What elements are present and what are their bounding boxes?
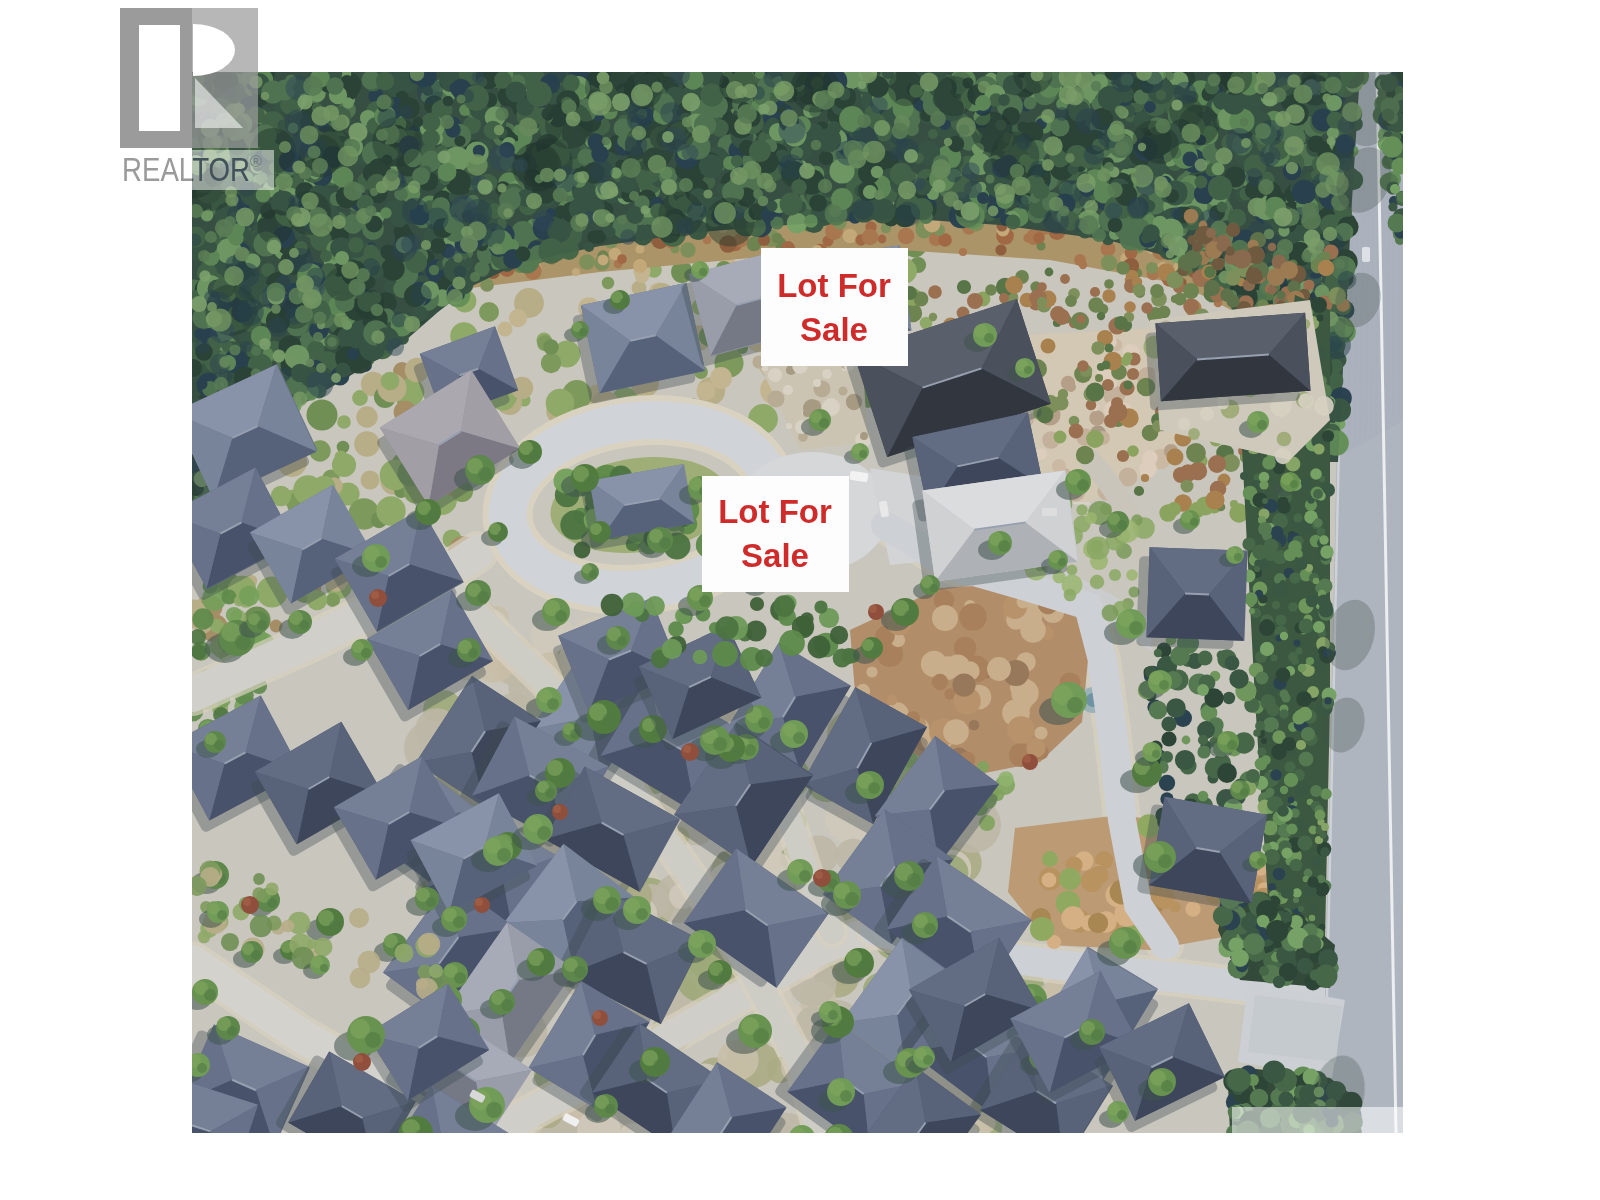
svg-text:Lot For: Lot For [777, 267, 891, 304]
svg-text:®: ® [250, 153, 262, 170]
svg-text:Lot For: Lot For [718, 493, 832, 530]
svg-text:Sale: Sale [741, 537, 809, 574]
svg-text:Sale: Sale [800, 311, 868, 348]
